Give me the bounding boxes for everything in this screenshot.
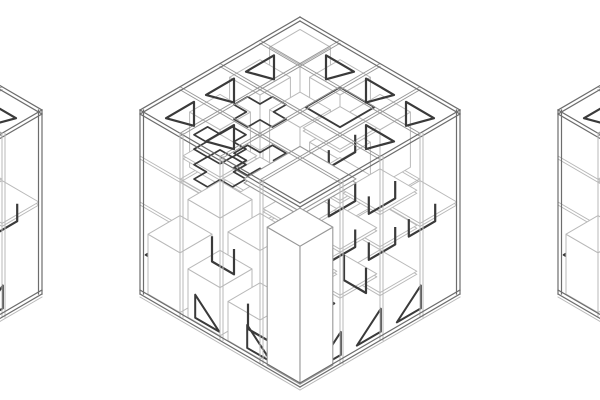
axonometric-drawing xyxy=(0,0,600,400)
drawing-canvas xyxy=(0,0,600,400)
